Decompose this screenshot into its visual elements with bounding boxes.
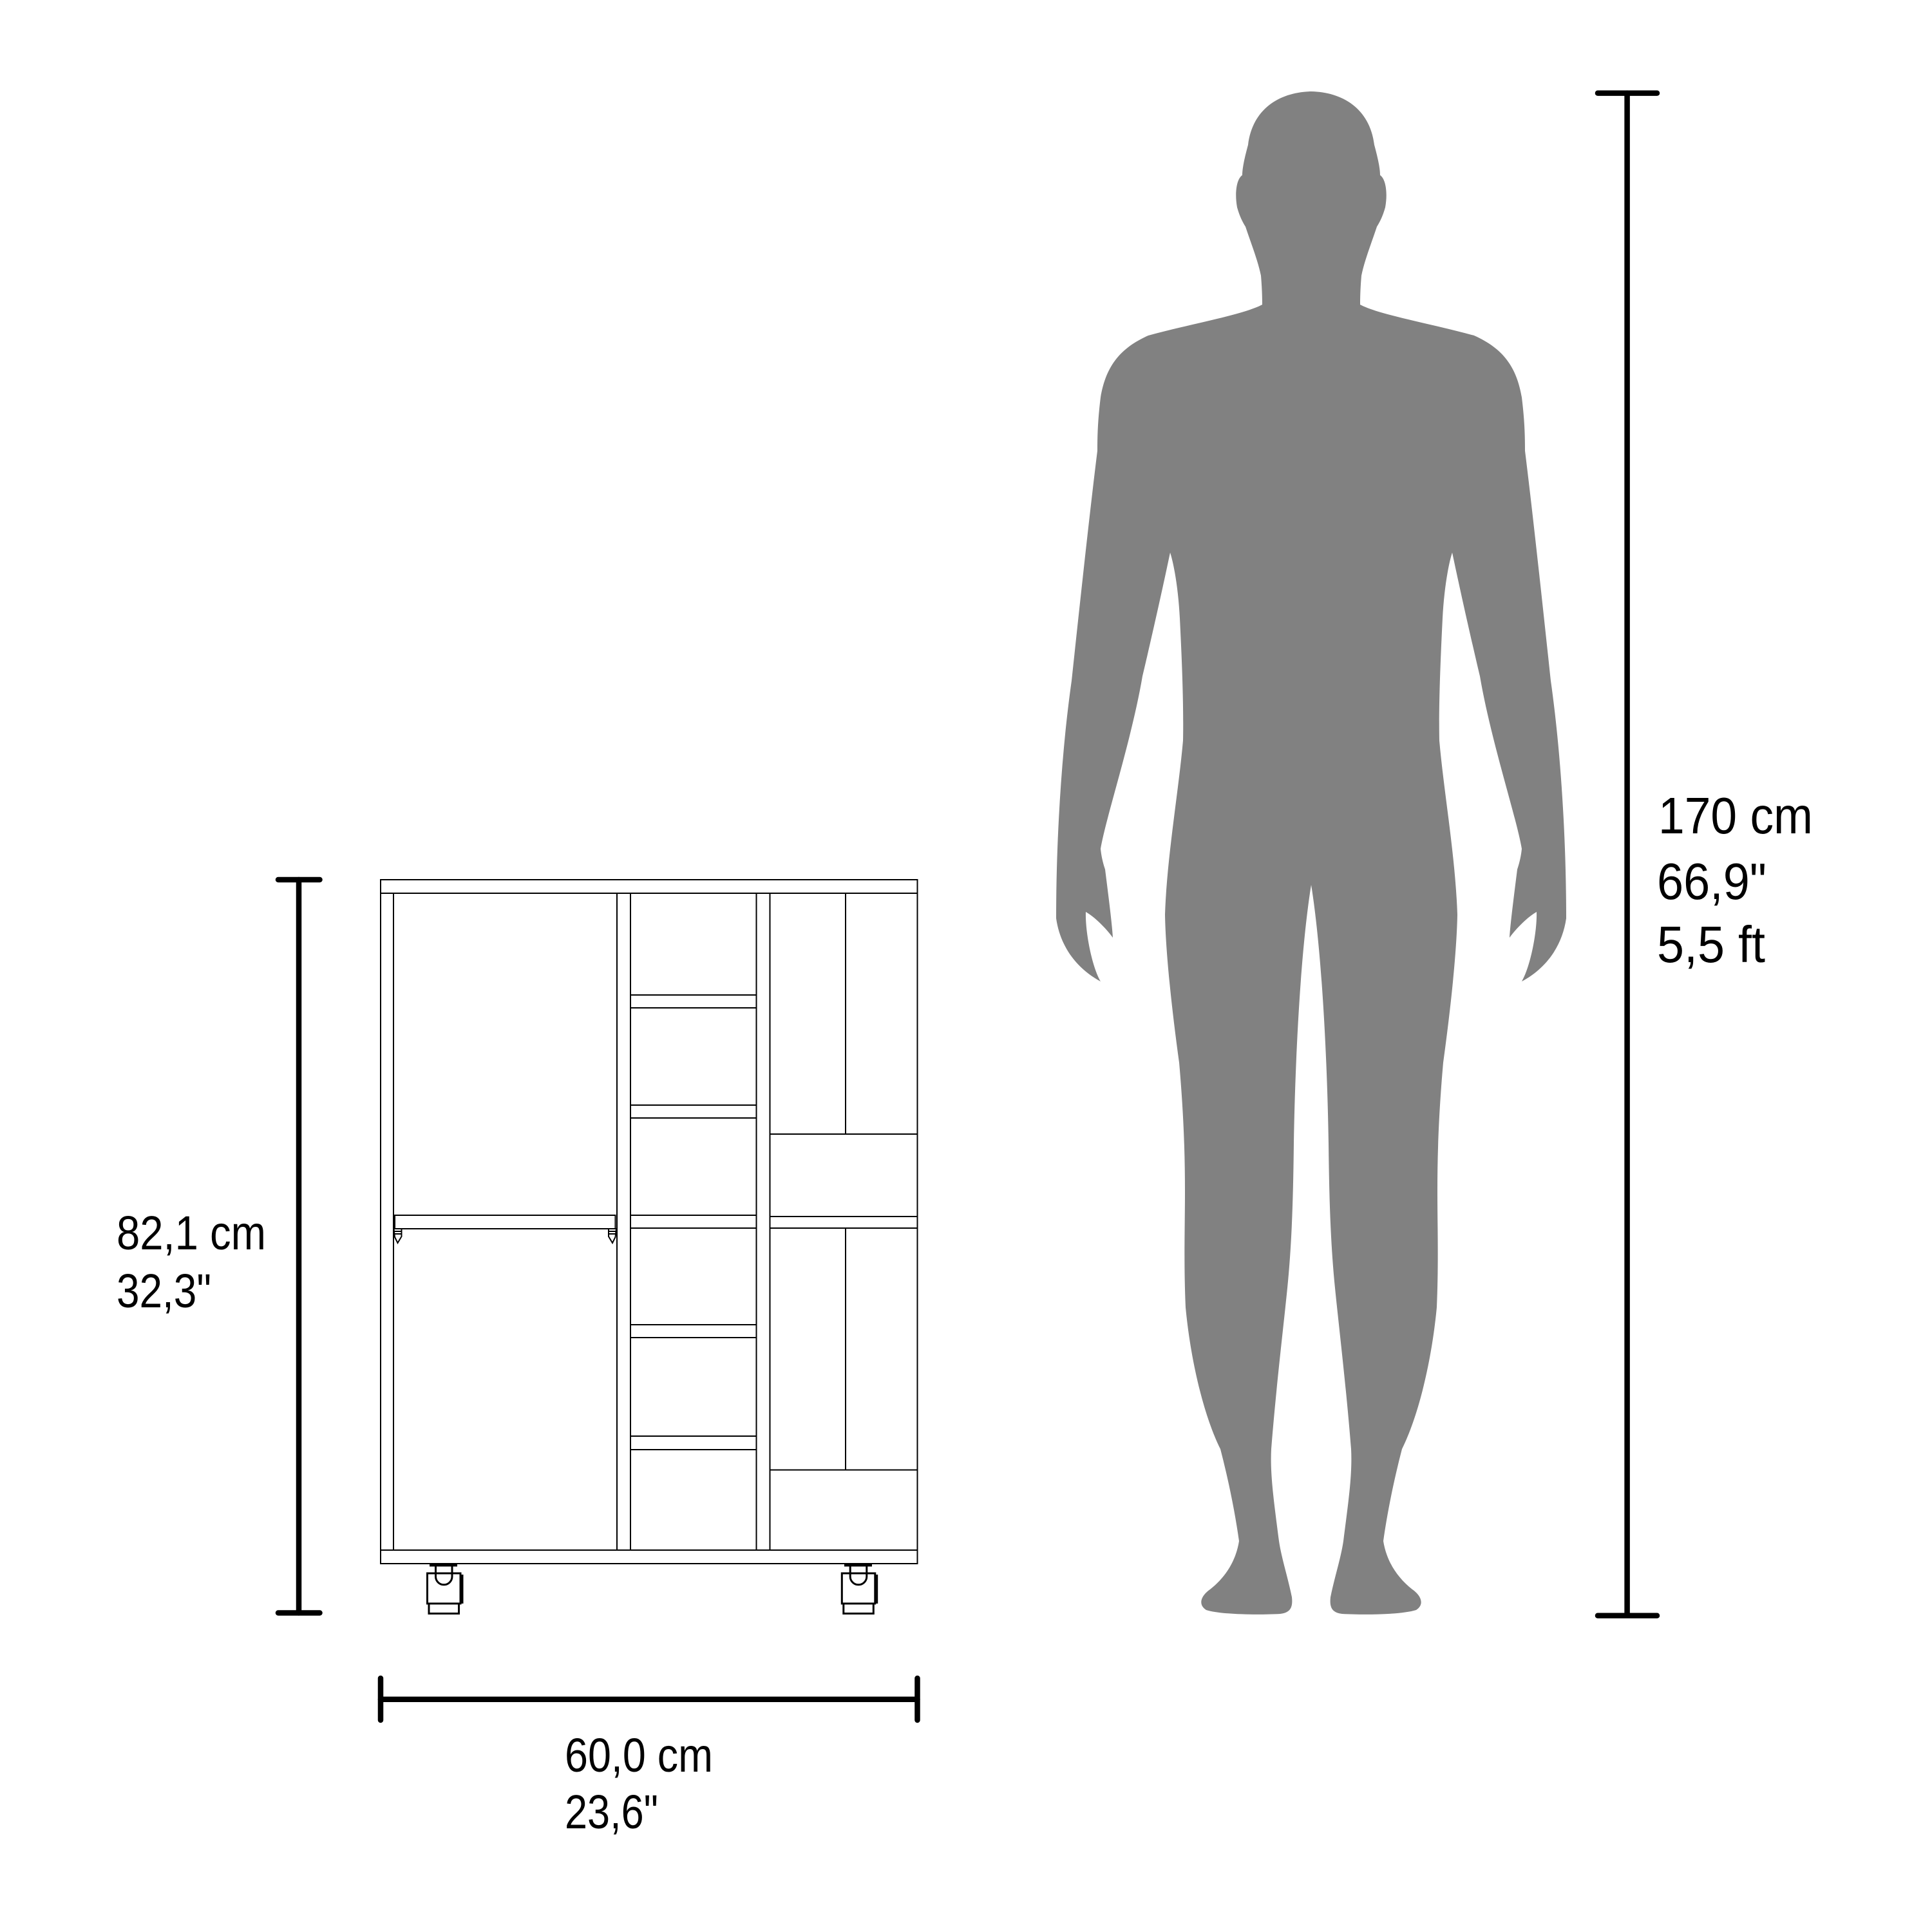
- svg-text:60,0 cm: 60,0 cm: [565, 1728, 713, 1782]
- svg-text:5,5 ft: 5,5 ft: [1657, 916, 1765, 973]
- svg-text:23,6": 23,6": [565, 1785, 658, 1839]
- svg-text:32,3": 32,3": [117, 1264, 211, 1318]
- svg-text:66,9": 66,9": [1657, 853, 1766, 910]
- svg-text:82,1 cm: 82,1 cm: [117, 1206, 266, 1260]
- svg-text:170 cm: 170 cm: [1658, 787, 1813, 844]
